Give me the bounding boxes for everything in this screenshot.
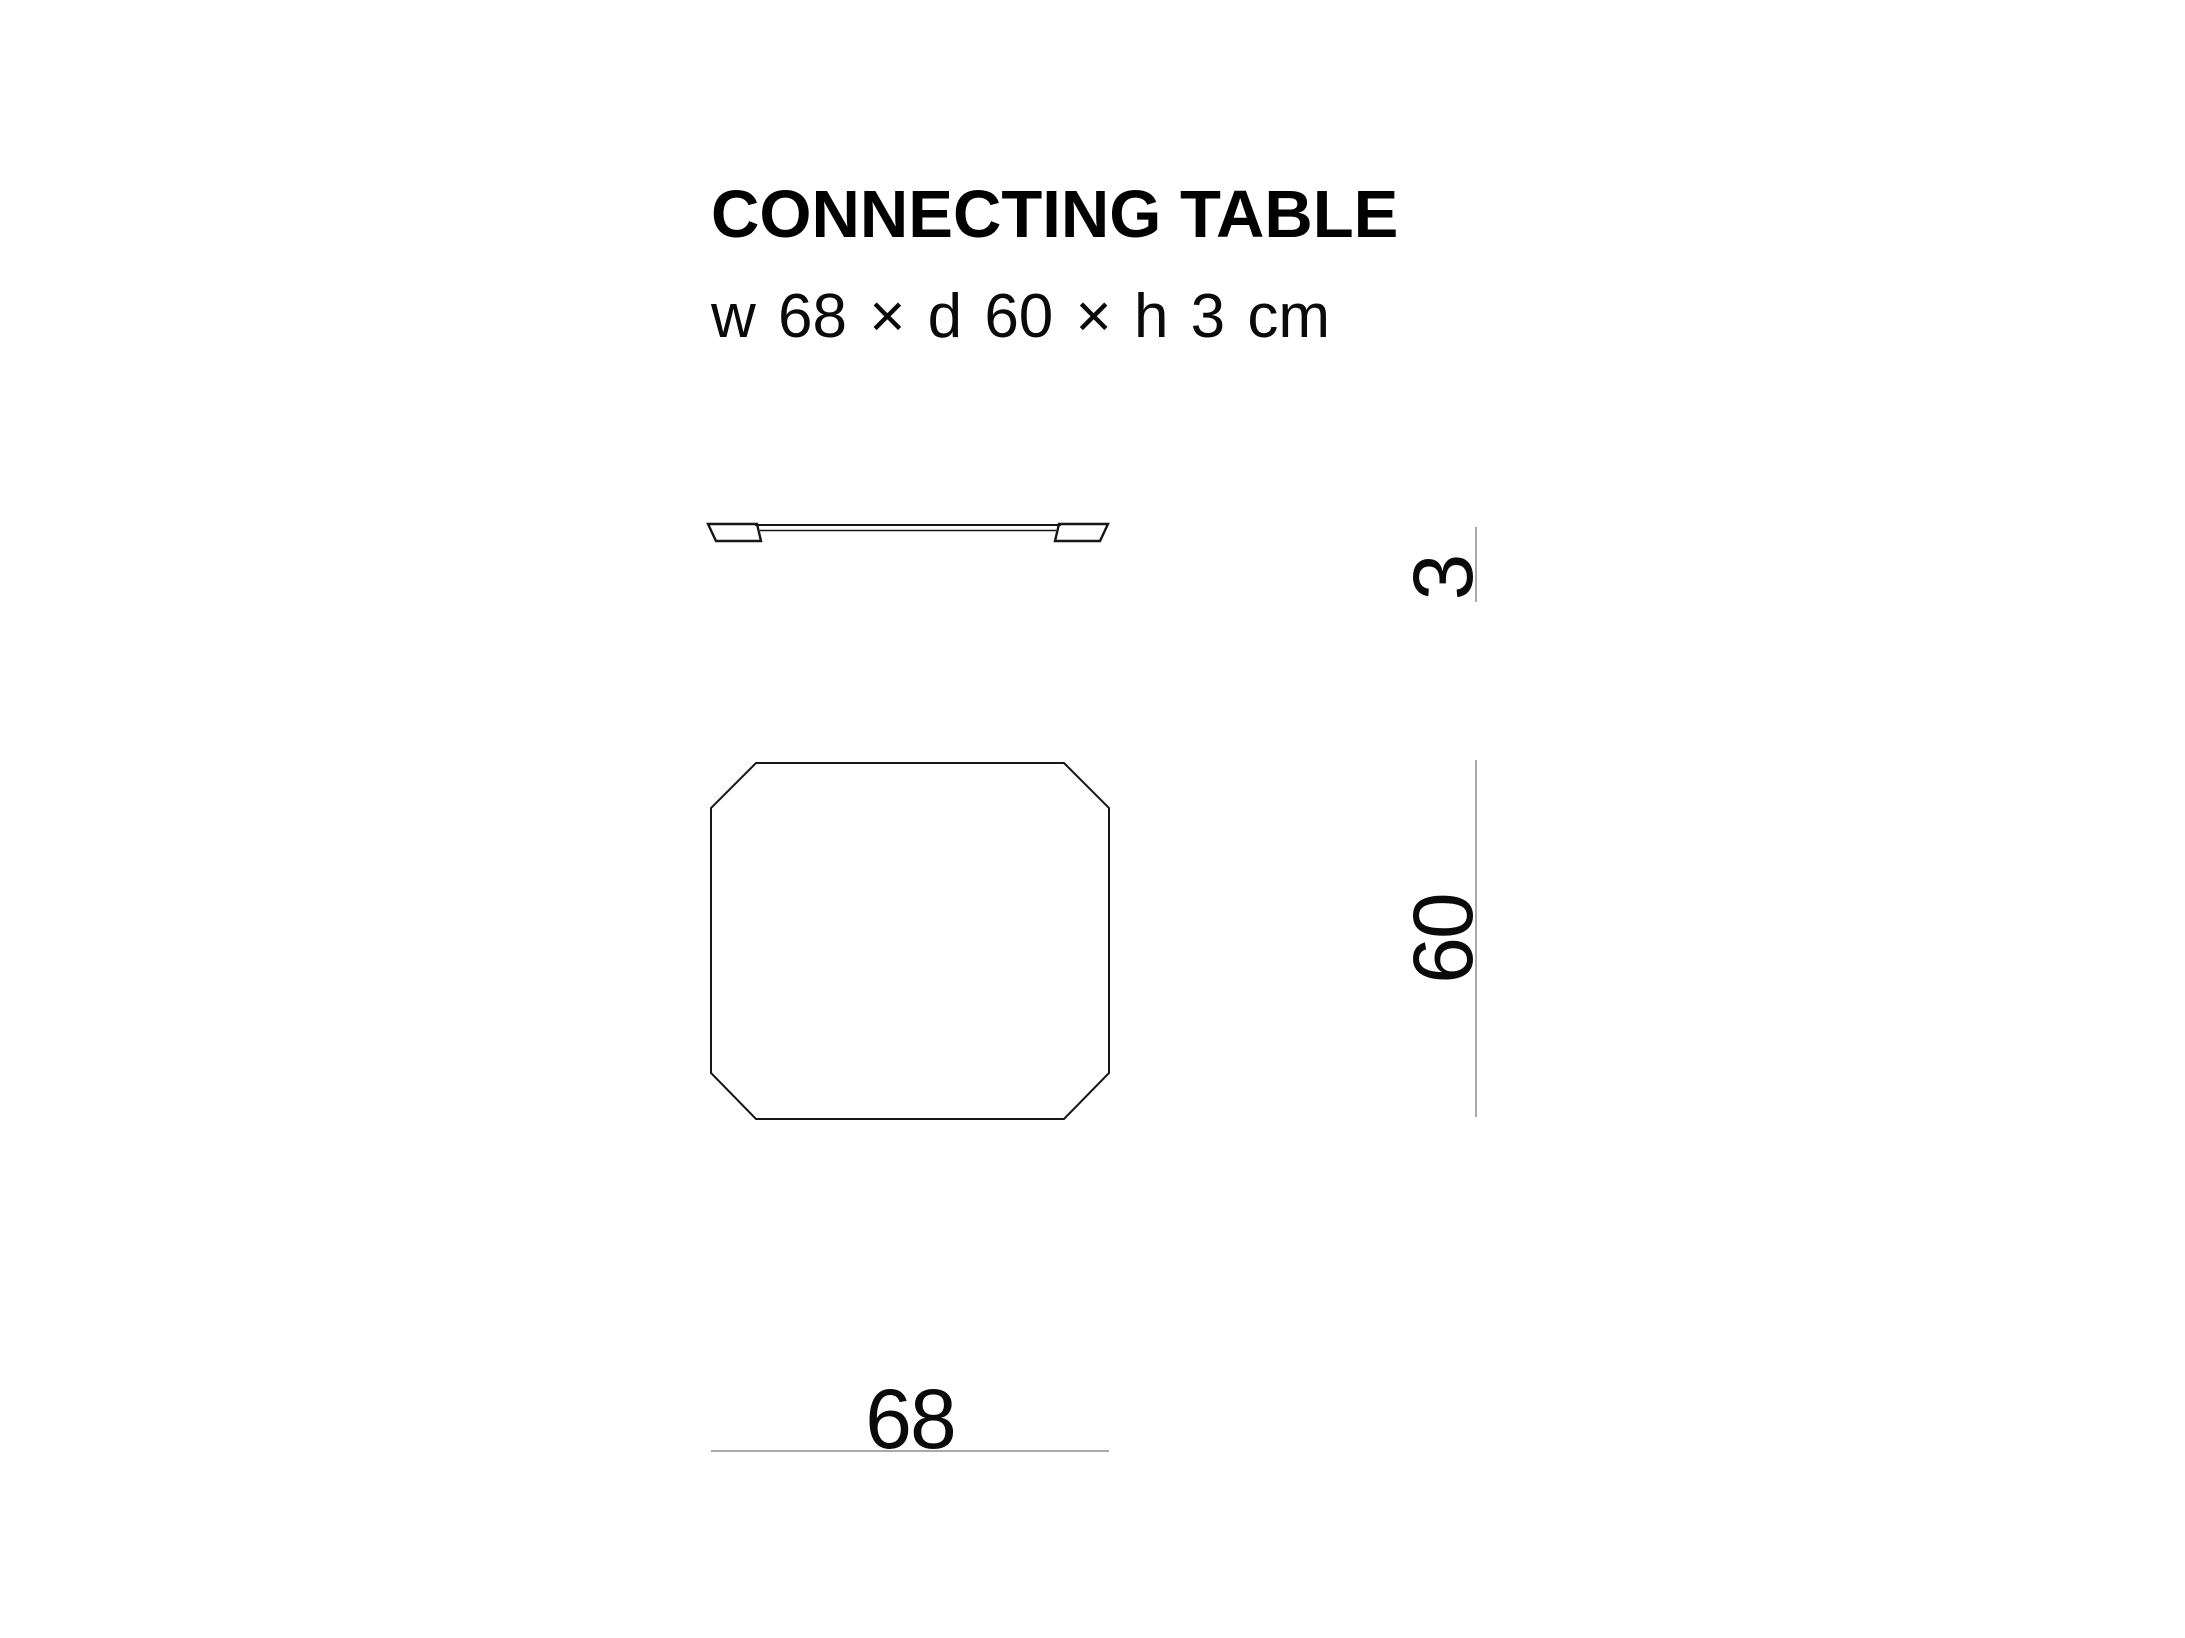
drawing-sheet: CONNECTING TABLE w 68 × d 60 × h 3 cm 3 … bbox=[0, 0, 2185, 1638]
technical-drawing: CONNECTING TABLE w 68 × d 60 × h 3 cm 3 … bbox=[0, 0, 2185, 1638]
top-view-outline bbox=[711, 763, 1109, 1119]
dimensions-subtitle: w 68 × d 60 × h 3 cm bbox=[710, 282, 1330, 351]
depth-dimension-label: 60 bbox=[1396, 894, 1490, 983]
height-dimension-label: 3 bbox=[1396, 556, 1490, 601]
side-view-right-bracket bbox=[1055, 524, 1108, 541]
side-view-left-bracket bbox=[708, 524, 761, 541]
width-dimension-label: 68 bbox=[865, 1372, 954, 1466]
page-title: CONNECTING TABLE bbox=[711, 177, 1398, 252]
